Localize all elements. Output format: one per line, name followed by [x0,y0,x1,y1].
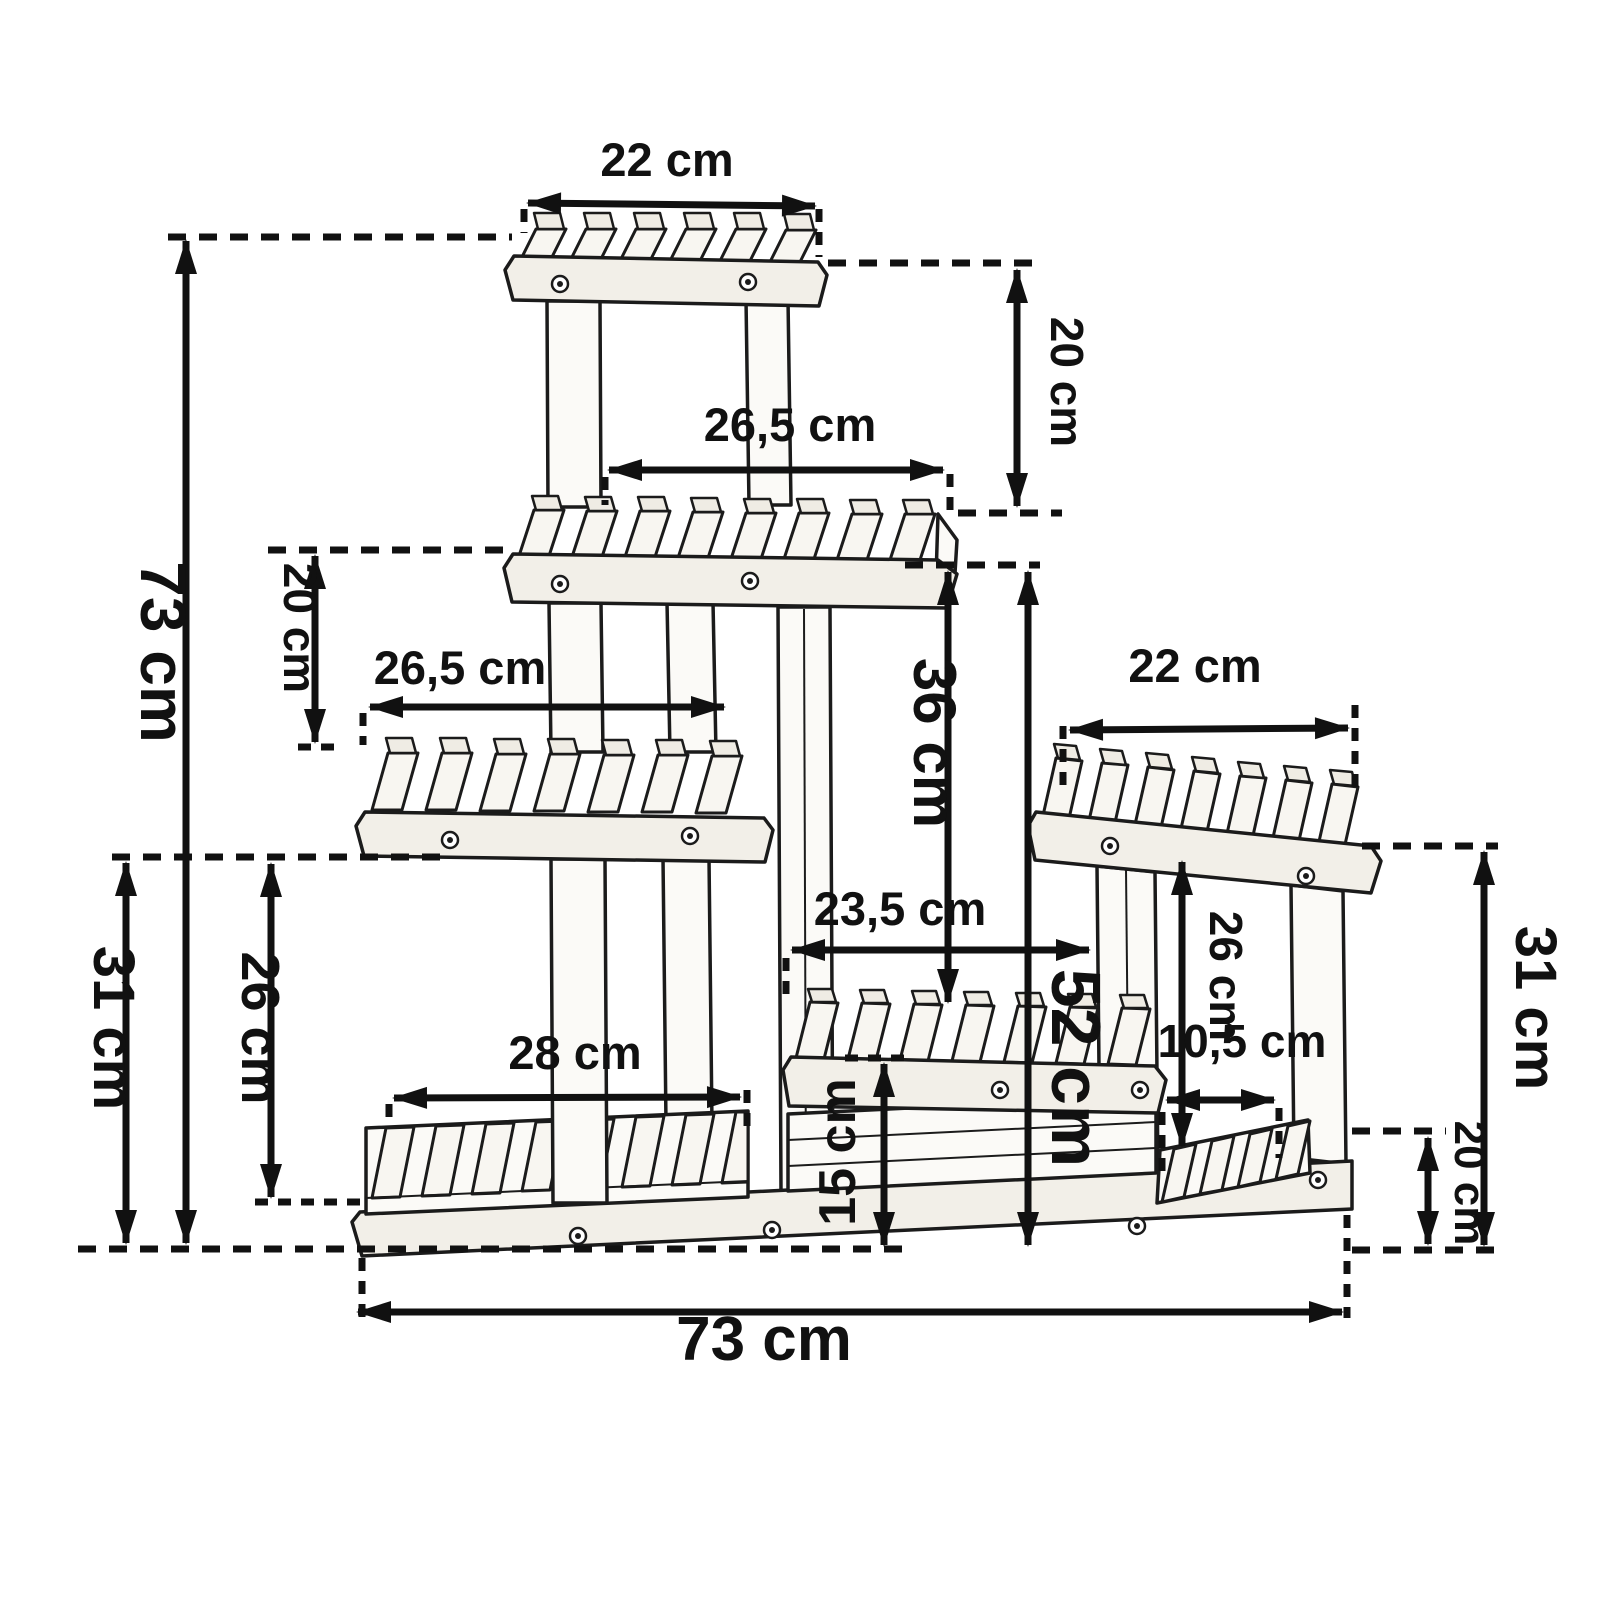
dim-right-section-height-label: 31 cm [1503,926,1568,1090]
dim-total-height-label: 73 cm [127,561,199,742]
dim-base-to-tier2-height-label: 52 cm [1037,969,1115,1167]
post-mid-center [667,602,716,752]
post-upper-left [547,301,601,507]
screw [742,573,758,589]
dim-tier2-width-label: 26,5 cm [704,398,876,451]
dim-tier1-tier2-gap-label: 20 cm [1041,317,1093,447]
screw [1298,868,1314,884]
dim-tier2-tier3-gap-label: 20 cm [274,563,326,693]
dim-right-shelf-width-label: 22 cm [1128,639,1261,692]
right-shelf [1028,744,1381,893]
dim-tier3-width-label: 26,5 cm [374,641,546,694]
second-shelf [504,496,957,608]
dim-tier3-to-bottom-shelf: 26 cm [230,864,363,1202]
dim-top-shelf-width-label: 22 cm [600,133,733,186]
screw [552,276,568,292]
dim-total-width-label: 73 cm [676,1305,852,1374]
dim-tier3-to-bottom-shelf-label: 26 cm [230,951,290,1104]
dim-tier1-tier2-gap: 20 cm [828,263,1093,513]
top-shelf [505,213,827,306]
screw [570,1228,586,1244]
dim-top-shelf-width: 22 cm [524,133,819,257]
flower-stand-drawing: 22 cm 20 cm 26,5 cm 73 cm 20 cm 26,5 cm … [0,0,1600,1600]
dim-left-section-height-label: 31 cm [81,946,146,1110]
dim-middle-lower-height-label: 15 cm [809,1078,867,1225]
post-lower-center [663,858,712,1124]
dim-middle-height-label: 36 cm [901,658,968,828]
screw [682,828,698,844]
screw [764,1222,780,1238]
post-mid-left [549,603,603,752]
screw [1310,1172,1326,1188]
screw [1132,1082,1148,1098]
dim-right-step-height: 20 cm [1352,1121,1494,1246]
dim-middle-shelf-width-label: 23,5 cm [814,882,986,935]
dim-bottom-shelf-width-label: 28 cm [508,1026,641,1079]
dim-middle-height: 36 cm [901,565,1040,1002]
screw [1102,838,1118,854]
screw [992,1082,1008,1098]
dim-right-inner-width-label: 10,5 cm [1158,1015,1327,1067]
diagram-canvas: 22 cm 20 cm 26,5 cm 73 cm 20 cm 26,5 cm … [0,0,1600,1600]
screw [442,832,458,848]
screw [552,576,568,592]
third-shelf [356,738,773,862]
screw [1129,1218,1145,1234]
dim-right-step-height-label: 20 cm [1445,1121,1494,1246]
screw [740,274,756,290]
